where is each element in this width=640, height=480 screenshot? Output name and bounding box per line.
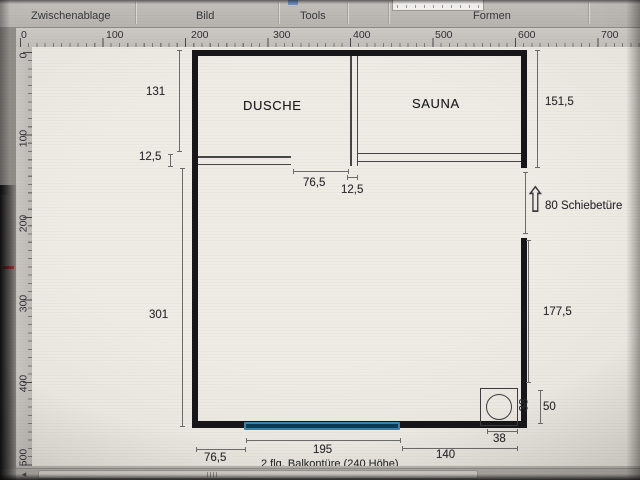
ruler-tick-label: 300 [18,292,29,316]
wall-top [192,50,527,56]
dim-label-38-bottom: 38 [493,433,506,445]
ribbon-group-image: Bild [196,10,214,22]
ruler-tick-label: 300 [273,29,291,41]
dimension-line [246,440,401,441]
ruler-tick-label: 100 [18,127,29,151]
ruler-tick-label: 200 [18,212,29,236]
dim-label-schiebetuere: 80 Schiebetüre [545,200,622,212]
wall-right-upper [521,50,527,168]
dimension-line [182,168,183,427]
drawing-canvas[interactable]: DUSCHE SAUNA 131 12,5 301 151,5 80 Schie… [32,47,640,467]
room-label-sauna: SAUNA [412,96,460,111]
app-window: Zwischenablage Bild Tools Formen 0 100 2… [0,0,640,480]
ruler-tick-label: 0 [18,44,29,68]
wall-left [192,50,198,428]
dimension-line [402,448,518,449]
room-label-dusche: DUSCHE [243,98,302,113]
dim-label-38-rotated: 38 [518,399,530,412]
ribbon-separator [347,2,348,24]
sauna-wall [358,153,521,155]
dim-label-76-5-top: 76,5 [303,177,325,189]
ruler-tick-label: 700 [601,29,619,41]
sauna-wall [358,161,521,163]
dimension-line [196,449,246,450]
dimension-line [528,240,529,383]
dimension-line [537,50,538,168]
scroll-left-arrow-icon[interactable]: ◂ [17,469,31,480]
dimension-line [293,171,349,172]
balcony-door-marker [244,422,400,430]
dim-label-50: 50 [543,401,556,413]
dimension-line [179,50,180,152]
horizontal-ruler: 0 100 200 300 400 500 600 700 [16,28,640,48]
dim-label-195: 195 [313,444,332,456]
dim-label-12-5-top: 12,5 [341,184,363,196]
ruler-tick-label: 400 [353,29,371,41]
scrollbar-corner [0,469,16,480]
dusche-wall [198,164,291,166]
vertical-ruler: 0 100 200 300 400 500 [16,47,33,475]
appliance-circle [486,394,512,420]
shapes-gallery-partial[interactable] [392,0,484,11]
ribbon-separator [588,2,589,24]
dim-label-12-5-left: 12,5 [139,151,161,163]
dimension-line [540,390,541,424]
ruler-tick-label: 400 [18,372,29,396]
ribbon-group-tools: Tools [300,10,326,22]
ribbon: Zwischenablage Bild Tools Formen [0,0,640,28]
horizontal-scrollbar[interactable]: ◂ [0,468,640,480]
dim-label-301: 301 [149,309,168,321]
ruler-tick-label: 600 [518,29,536,41]
center-wall [350,56,352,166]
dim-label-140: 140 [436,449,455,461]
sliding-door-arrow-icon: ⇧ [524,181,547,221]
ruler-tick-label: 200 [191,29,209,41]
ruler-tick-label: 0 [21,29,27,41]
dimension-line [347,177,358,178]
dimension-line [170,154,171,167]
ribbon-icon-fragment [288,0,298,5]
dusche-wall [198,156,291,158]
window-left-edge [0,28,16,480]
center-wall [357,56,359,166]
dim-label-177-5: 177,5 [543,306,572,318]
dimension-line [487,431,518,432]
ruler-tick-label: 500 [435,29,453,41]
dim-label-131: 131 [146,86,165,98]
ribbon-separator [135,2,136,24]
scrollbar-grip-icon [207,472,217,477]
scrollbar-thumb[interactable] [38,470,478,479]
dim-label-151-5: 151,5 [545,96,574,108]
ribbon-group-clipboard: Zwischenablage [31,10,111,22]
ribbon-separator [388,2,389,24]
dim-label-76-5-bottom: 76,5 [204,452,226,464]
ruler-position-marker [3,266,14,269]
ruler-tick-label: 100 [106,29,124,41]
ribbon-group-shapes: Formen [473,10,511,22]
ribbon-separator [278,2,279,24]
